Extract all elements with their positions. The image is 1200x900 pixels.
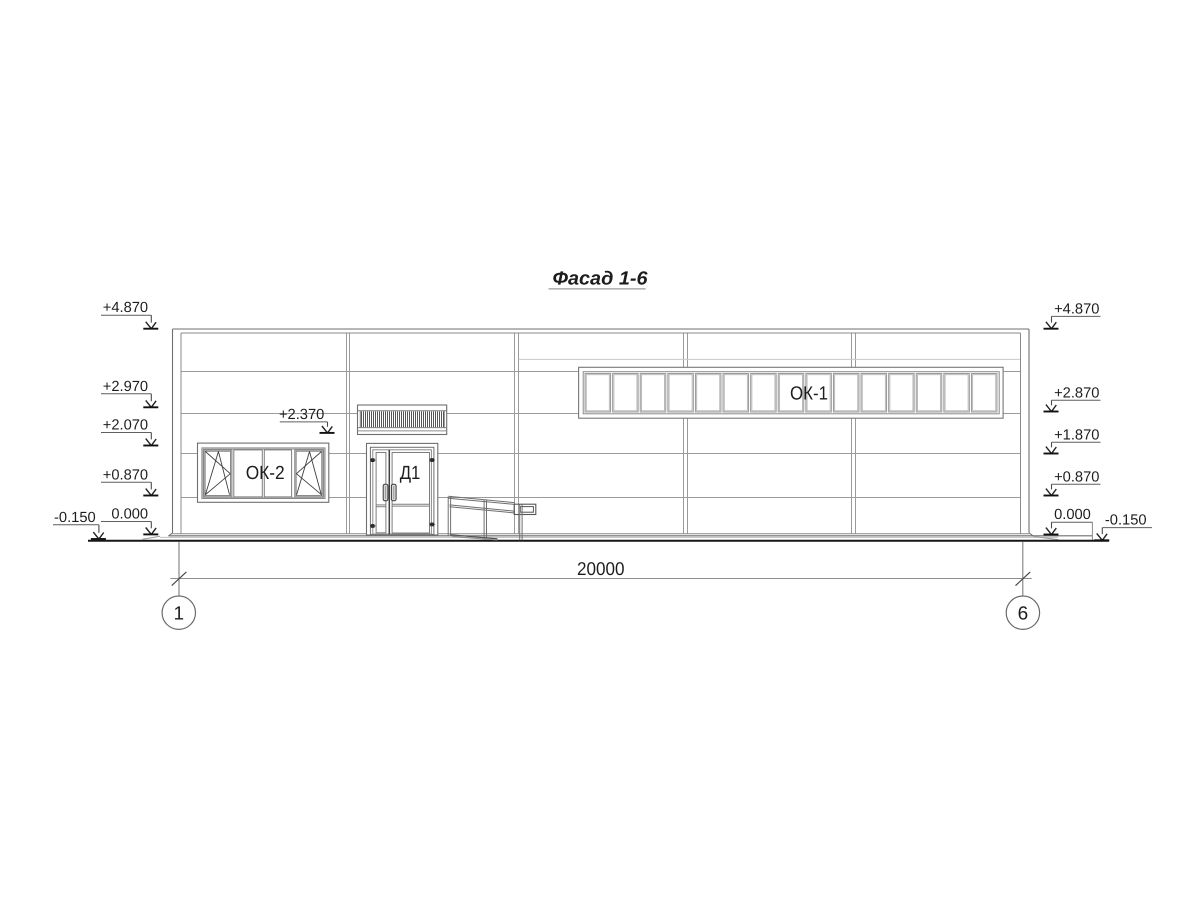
svg-text:Фасад 1-6: Фасад 1-6 [553, 269, 648, 290]
svg-text:ОК-1: ОК-1 [790, 383, 828, 404]
svg-text:Д1: Д1 [400, 463, 421, 484]
svg-text:+1.870: +1.870 [1054, 427, 1099, 443]
svg-text:+2.070: +2.070 [103, 418, 148, 434]
svg-text:20000: 20000 [577, 558, 625, 579]
svg-text:0.000: 0.000 [1054, 507, 1091, 523]
svg-text:+0.870: +0.870 [1054, 469, 1099, 485]
svg-text:+2.870: +2.870 [1054, 385, 1099, 401]
svg-text:+2.970: +2.970 [103, 379, 148, 395]
svg-text:+0.870: +0.870 [103, 467, 148, 483]
svg-text:1: 1 [174, 603, 185, 624]
svg-text:ОК-2: ОК-2 [246, 463, 285, 484]
svg-text:-0.150: -0.150 [54, 510, 96, 526]
svg-text:+4.870: +4.870 [1054, 301, 1099, 317]
svg-text:0.000: 0.000 [111, 507, 148, 523]
svg-text:-0.150: -0.150 [1105, 513, 1147, 529]
svg-text:+4.870: +4.870 [103, 300, 148, 316]
svg-text:+2.370: +2.370 [279, 407, 324, 423]
svg-text:6: 6 [1018, 603, 1029, 624]
